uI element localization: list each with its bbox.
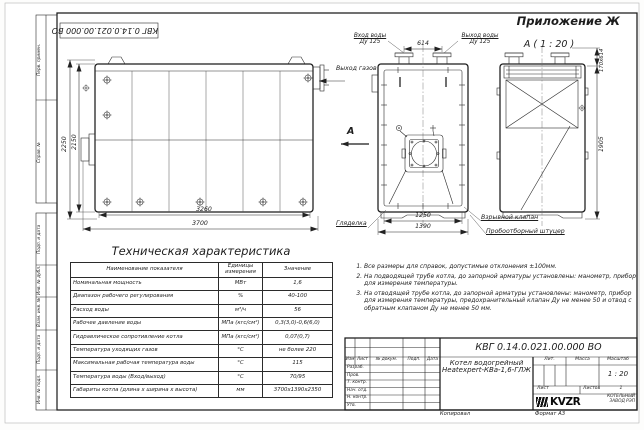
dim-1905: 1905 bbox=[599, 136, 606, 152]
dim-1250: 1250 bbox=[408, 213, 438, 220]
spec-cell: Габариты котла (длина х ширина х высота) bbox=[71, 385, 219, 398]
spec-table-title: Техническая характеристика bbox=[85, 245, 317, 257]
tb-col-podp: Подп. bbox=[403, 358, 425, 363]
spec-cell: 0,07(0,7) bbox=[263, 331, 333, 344]
tb-scale-value: 1 : 20 bbox=[599, 371, 637, 378]
format-label: Формат А3 bbox=[515, 412, 585, 418]
water-inlet-dn: Ду 125 bbox=[350, 39, 390, 45]
spec-cell: МВт bbox=[219, 277, 263, 290]
view-arrow-letter: А bbox=[347, 127, 354, 137]
spec-row: Рабочее давление водыМПа (кгс/см²)0,3(3,… bbox=[71, 318, 333, 331]
spec-row: Максимальная рабочая температура воды°С1… bbox=[71, 358, 333, 371]
water-outlet-label: Выход воды Ду 125 bbox=[458, 33, 502, 45]
strip-podp-data-2: Подп. и дата bbox=[38, 335, 43, 364]
strip-podp-data-1: Подп. и дата bbox=[38, 225, 43, 254]
drawing-sheet: КВГ 0.14.0.021.00.000 ВО Приложение Ж А … bbox=[0, 0, 644, 430]
product-name-line2: Heatexpert-КВа-1,6-ГЛЖ bbox=[441, 367, 532, 374]
dim-614: 614 bbox=[408, 41, 438, 48]
company-line2: ЗАВОД РЭП bbox=[577, 400, 635, 405]
view-a-label: А ( 1 : 20 ) bbox=[518, 40, 580, 50]
dim-3700: 3700 bbox=[185, 221, 215, 228]
spec-cell: 56 bbox=[263, 304, 333, 317]
tb-row-nachotd: Нач. отд. bbox=[347, 389, 368, 394]
spec-col-units: Единицы измерения bbox=[219, 263, 263, 278]
spec-col-name: Наименование показателя bbox=[71, 263, 219, 278]
spec-cell: мм bbox=[219, 385, 263, 398]
tb-row-nkontr: Н. контр. bbox=[347, 396, 368, 401]
company-name: КОТЕЛЬНЫЙ ЗАВОД РЭП bbox=[577, 395, 635, 404]
strip-perv-primen: Перв. примен. bbox=[38, 44, 43, 76]
spec-cell: Рабочее давление воды bbox=[71, 318, 219, 331]
spec-header-row: Наименование показателя Единицы измерени… bbox=[71, 263, 333, 278]
spec-cell: МПа (кгс/см²) bbox=[219, 318, 263, 331]
kvzr-logo-text: KVZR bbox=[550, 396, 580, 408]
spec-cell: % bbox=[219, 291, 263, 304]
kvzr-logo: KVZR bbox=[536, 396, 580, 408]
tb-lit-label: Лит. bbox=[533, 358, 566, 363]
spec-cell: Максимальная рабочая температура воды bbox=[71, 358, 219, 371]
water-inlet-label: Вход воды Ду 125 bbox=[350, 33, 390, 45]
tb-sheets-value: 1 bbox=[614, 387, 628, 392]
spec-cell: Температура уходящих газов bbox=[71, 344, 219, 357]
note-item: На отводящей трубе котла, до запорной ар… bbox=[364, 290, 640, 313]
tb-col-data: Дата bbox=[425, 358, 440, 363]
strip-sprav-no: Справ. № bbox=[38, 142, 43, 163]
spec-row: Гидравлическое сопротивление котлаМПа (к… bbox=[71, 331, 333, 344]
spec-cell: Диапазон рабочего регулирования bbox=[71, 291, 219, 304]
appendix-label: Приложение Ж bbox=[505, 15, 620, 27]
dim-170x614: 170х614 bbox=[600, 49, 606, 72]
kopiroval-label: Копировал bbox=[420, 412, 490, 418]
spec-cell: 3700х1390х2350 bbox=[263, 385, 333, 398]
tb-row-utv: Утв. bbox=[347, 404, 356, 409]
spec-row: Расход водым³/ч56 bbox=[71, 304, 333, 317]
tb-col-list: Лист bbox=[355, 358, 370, 363]
spec-cell: м³/ч bbox=[219, 304, 263, 317]
spec-col-value: Значение bbox=[263, 263, 333, 278]
tb-row-prov: Пров. bbox=[347, 374, 360, 379]
strip-vzam-inv: Взам. инв. № bbox=[38, 298, 43, 327]
note-item: Все размеры для справок, допустимые откл… bbox=[364, 263, 640, 271]
tb-row-razrab: Разраб. bbox=[347, 366, 364, 371]
top-stamp-doc-number: КВГ 0.14.0.021.00.000 ВО bbox=[60, 23, 158, 38]
spec-row: Диапазон рабочего регулирования%40-100 bbox=[71, 291, 333, 304]
spec-row: Номинальная мощностьМВт1,6 bbox=[71, 277, 333, 290]
tb-col-dokum: № докум. bbox=[370, 358, 403, 363]
sampling-fitting-label: Пробоотборный штуцер bbox=[486, 229, 565, 236]
peephole-label: Гляделка bbox=[336, 221, 367, 228]
product-name: Котел водогрейный Heatexpert-КВа-1,6-ГЛЖ bbox=[441, 360, 532, 375]
water-outlet-dn: Ду 125 bbox=[458, 39, 502, 45]
spec-cell: 0,3(3,0)-0,6(6,0) bbox=[263, 318, 333, 331]
note-item: На подводящей трубе котла, до запорной а… bbox=[364, 273, 640, 288]
spec-row: Температура воды (Вход/выход)°С70/95 bbox=[71, 371, 333, 384]
spec-row: Температура уходящих газов°Сне более 220 bbox=[71, 344, 333, 357]
spec-cell: °С bbox=[219, 344, 263, 357]
tb-mass-label: Масса bbox=[566, 358, 599, 363]
spec-cell: МПа (кгс/см²) bbox=[219, 331, 263, 344]
spec-cell: Температура воды (Вход/выход) bbox=[71, 371, 219, 384]
spec-cell: 40-100 bbox=[263, 291, 333, 304]
spec-cell: Гидравлическое сопротивление котла bbox=[71, 331, 219, 344]
tb-col-izm: Изм bbox=[345, 358, 355, 363]
strip-inv-podl: Инв. № подл. bbox=[38, 374, 43, 404]
gas-outlet-label: Выход газов bbox=[336, 66, 377, 73]
tb-scale-label: Масштаб bbox=[599, 358, 637, 363]
dim-3260: 3260 bbox=[189, 207, 219, 214]
spec-cell: °С bbox=[219, 358, 263, 371]
spec-cell: не более 220 bbox=[263, 344, 333, 357]
spec-cell: 115 bbox=[263, 358, 333, 371]
tb-sheet-label: Лист bbox=[537, 387, 549, 392]
kvzr-logo-mark-icon bbox=[536, 397, 548, 407]
spec-row: Габариты котла (длина х ширина х высота)… bbox=[71, 385, 333, 398]
tb-sheets-label: Листов bbox=[583, 387, 600, 392]
spec-cell: °С bbox=[219, 371, 263, 384]
title-block-doc-number: КВГ 0.14.0.021.00.000 ВО bbox=[441, 339, 636, 356]
dim-1390: 1390 bbox=[408, 224, 438, 231]
dim-2150: 2150 bbox=[72, 134, 79, 150]
tb-row-tkontr: Т. контр. bbox=[347, 381, 367, 386]
spec-cell: 1,6 bbox=[263, 277, 333, 290]
explosion-valve-label: Взрывной клапан bbox=[481, 215, 538, 222]
spec-table: Наименование показателя Единицы измерени… bbox=[70, 262, 333, 398]
spec-cell: 70/95 bbox=[263, 371, 333, 384]
spec-cell: Номинальная мощность bbox=[71, 277, 219, 290]
spec-cell: Расход воды bbox=[71, 304, 219, 317]
notes-list: Все размеры для справок, допустимые откл… bbox=[352, 263, 640, 314]
dim-2250: 2250 bbox=[62, 136, 69, 152]
strip-inv-dubl: Инв. № дубл. bbox=[38, 266, 43, 295]
